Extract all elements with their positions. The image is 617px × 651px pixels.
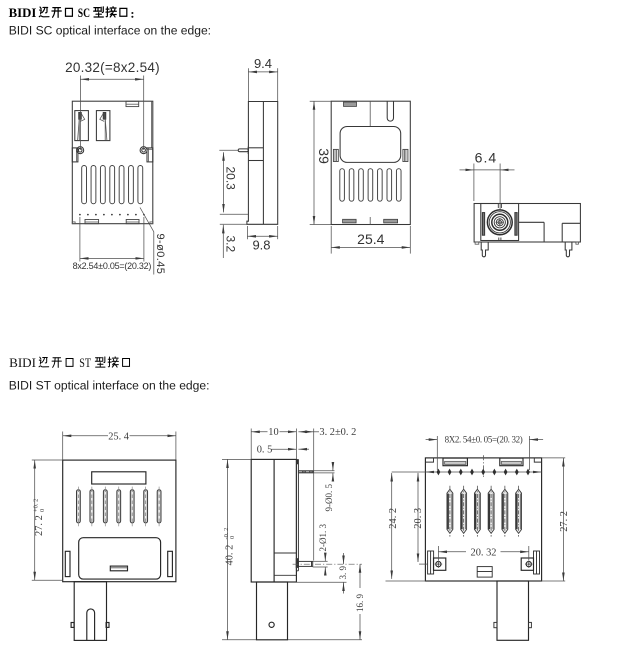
svg-text:9.8: 9.8 bbox=[252, 238, 270, 253]
svg-text:20.3: 20.3 bbox=[224, 167, 238, 191]
svg-text:10: 10 bbox=[268, 427, 278, 438]
svg-text:9.4: 9.4 bbox=[254, 56, 272, 71]
svg-text:BIDI SC optical interface on t: BIDI SC optical interface on the edge: bbox=[9, 24, 211, 38]
svg-text:16. 9: 16. 9 bbox=[355, 594, 365, 613]
svg-text:20. 3: 20. 3 bbox=[413, 508, 424, 529]
svg-text:24. 2: 24. 2 bbox=[388, 508, 399, 529]
svg-text:20. 32: 20. 32 bbox=[471, 547, 497, 558]
svg-text:25.4: 25.4 bbox=[357, 231, 384, 247]
svg-text:SC: SC bbox=[78, 6, 90, 20]
svg-text:40. 2: 40. 2 bbox=[225, 545, 236, 566]
svg-text:0. 5: 0. 5 bbox=[257, 444, 273, 455]
svg-text:0: 0 bbox=[39, 509, 46, 512]
svg-text:27. 2: 27. 2 bbox=[34, 515, 45, 536]
svg-text:BIDI ST optical interface on t: BIDI ST optical interface on the edge: bbox=[9, 378, 210, 392]
svg-text:8X2. 54±0. 05=(20. 32): 8X2. 54±0. 05=(20. 32) bbox=[445, 434, 523, 444]
svg-text:ST: ST bbox=[79, 355, 91, 370]
svg-text:39: 39 bbox=[316, 148, 332, 164]
svg-text:BIDI: BIDI bbox=[9, 355, 36, 370]
svg-text:BIDI: BIDI bbox=[9, 6, 37, 20]
svg-text:2-Ø1. 3: 2-Ø1. 3 bbox=[318, 524, 328, 552]
svg-text:9-Ø0. 5: 9-Ø0. 5 bbox=[324, 484, 334, 512]
svg-text:8x2.54±0.05=(20.32): 8x2.54±0.05=(20.32) bbox=[73, 261, 152, 271]
svg-text:6.4: 6.4 bbox=[475, 150, 497, 166]
svg-text:27. 2: 27. 2 bbox=[559, 511, 570, 532]
svg-text:25. 4: 25. 4 bbox=[108, 431, 130, 442]
svg-text:20.32(=8x2.54): 20.32(=8x2.54) bbox=[65, 60, 160, 75]
svg-text:3. 2±0. 2: 3. 2±0. 2 bbox=[319, 427, 356, 438]
svg-text:9-ø0.45: 9-ø0.45 bbox=[154, 234, 166, 275]
svg-text:3.2: 3.2 bbox=[224, 236, 238, 253]
svg-text:3. 9: 3. 9 bbox=[338, 566, 348, 580]
svg-text:0: 0 bbox=[229, 536, 236, 539]
